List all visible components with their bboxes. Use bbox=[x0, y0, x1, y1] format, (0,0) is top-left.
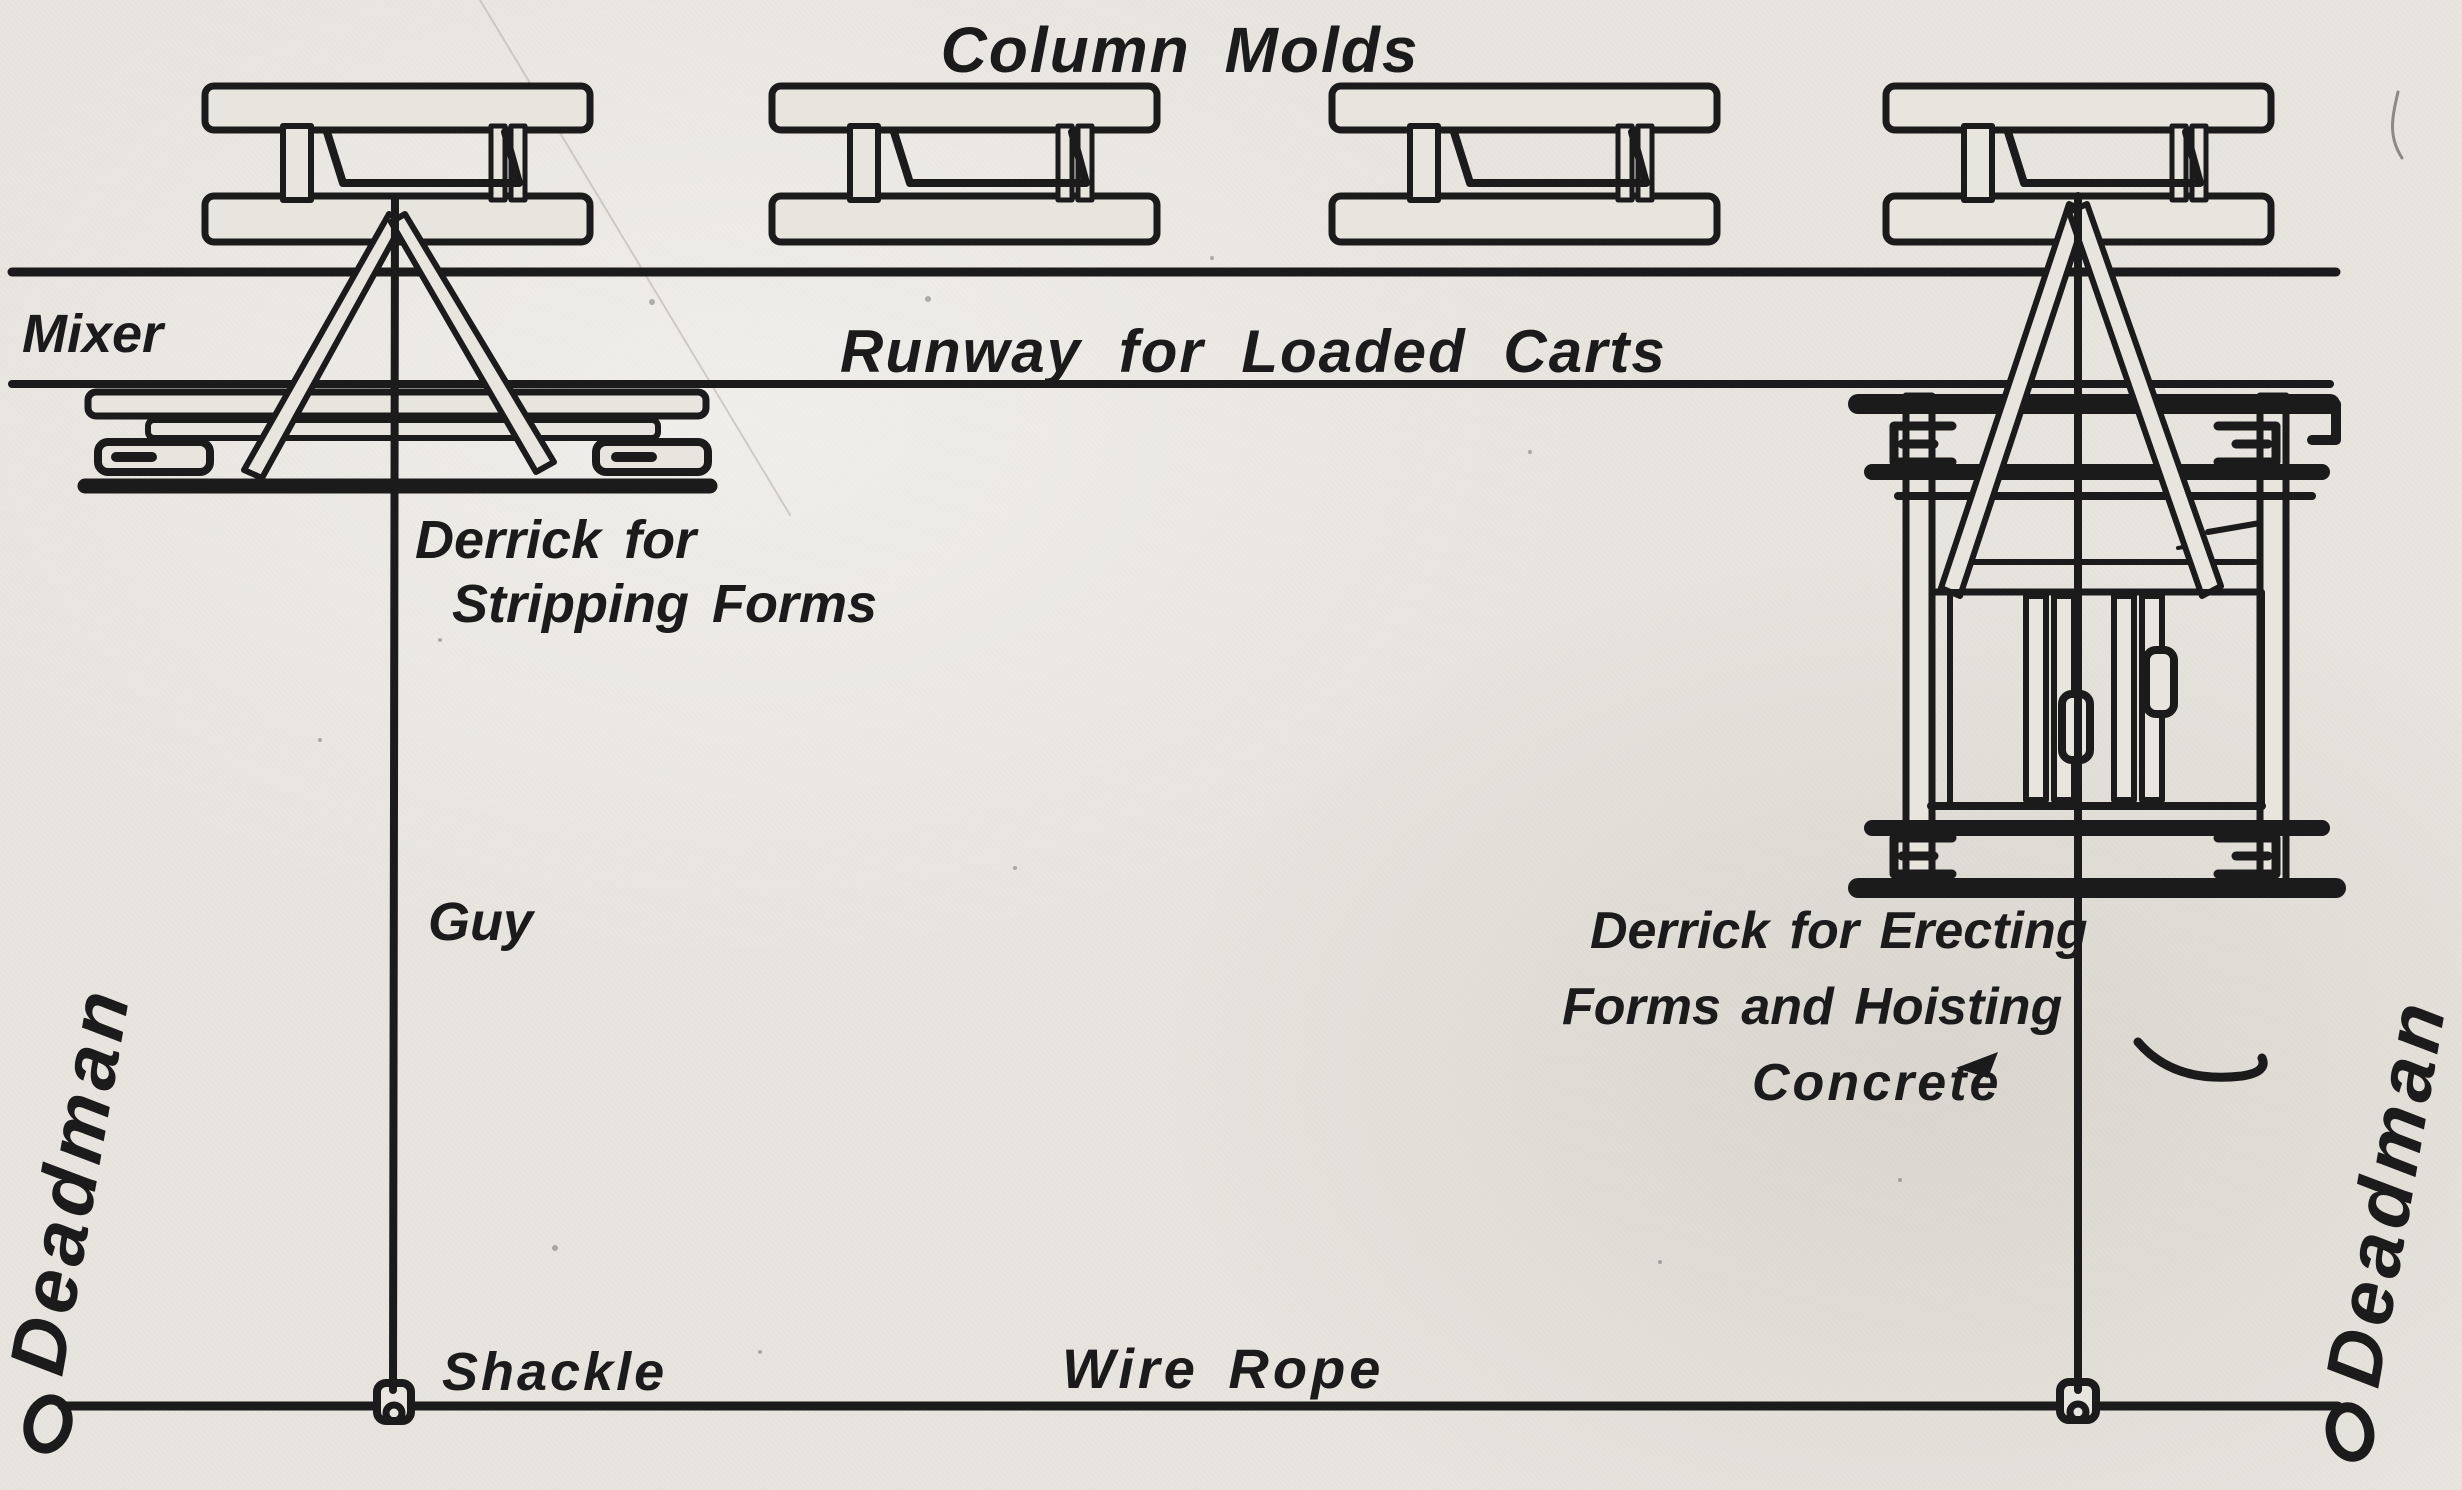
wire-rope-label: Wire Rope bbox=[1062, 1337, 1384, 1400]
column-mold-3 bbox=[1332, 86, 1717, 242]
form-cleat bbox=[2146, 650, 2174, 714]
stripping-derrick-label-line2: Stripping Forms bbox=[452, 574, 877, 634]
form-cage-outline bbox=[1950, 592, 2262, 806]
erecting-derrick-label-line3: Concrete bbox=[1752, 1054, 2001, 1112]
column-mold-2 bbox=[772, 86, 1157, 242]
deadman-ring-right bbox=[2326, 1403, 2375, 1461]
flatcar-deck-plank-2 bbox=[148, 420, 658, 438]
scanned-construction-diagram: Column Molds Mixer Runway for Loaded Car… bbox=[0, 0, 2462, 1490]
form-plank bbox=[2026, 596, 2046, 800]
diagram-canvas: Column Molds Mixer Runway for Loaded Car… bbox=[0, 0, 2462, 1490]
erecting-derrick bbox=[1858, 204, 2336, 892]
erecting-derrick-label-line1: Derrick for Erecting bbox=[1590, 902, 2088, 960]
stripping-derrick-label-line1: Derrick for bbox=[415, 510, 699, 570]
runway-label: Runway for Loaded Carts bbox=[840, 318, 1667, 385]
deadman-left-label: Deadman bbox=[0, 979, 147, 1381]
column-molds bbox=[205, 86, 2271, 242]
mixer-label: Mixer bbox=[22, 304, 166, 364]
paper-fiber-squiggle bbox=[2393, 92, 2403, 158]
deadman-right-label: Deadman bbox=[2308, 991, 2462, 1393]
pen-swoosh-mark bbox=[2138, 1042, 2263, 1077]
guy-line-left bbox=[393, 198, 395, 1390]
deadman-ring-left bbox=[22, 1394, 74, 1453]
form-plank bbox=[2114, 596, 2134, 800]
diagram-title: Column Molds bbox=[941, 14, 1420, 86]
shackle-label: Shackle bbox=[442, 1342, 667, 1402]
erecting-derrick-label-line2: Forms and Hoisting bbox=[1562, 978, 2062, 1036]
guy-label: Guy bbox=[428, 892, 536, 952]
